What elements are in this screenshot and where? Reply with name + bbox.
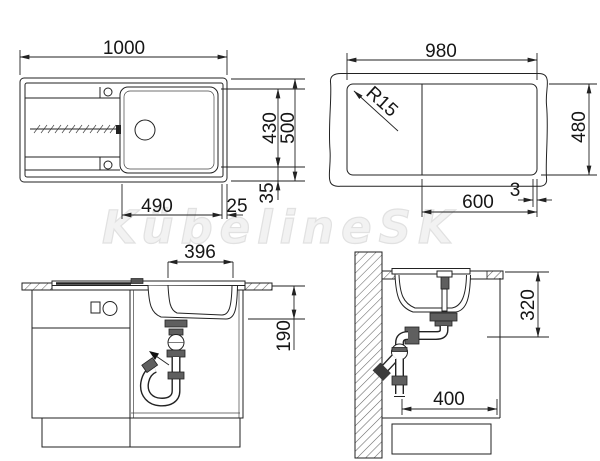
sink-outline — [20, 78, 227, 182]
dim-label-396: 396 — [184, 242, 216, 263]
dim-label-400: 400 — [433, 389, 465, 410]
bowl-front-section — [148, 286, 238, 320]
dim-cutout-depth: 480 — [541, 84, 597, 175]
dishwasher-panel — [91, 302, 100, 313]
bowl-side-section — [395, 271, 471, 312]
siphon-front — [142, 320, 187, 402]
dim-side-clearance: 400 — [402, 389, 497, 415]
front-section-view: 396 190 — [22, 242, 305, 447]
siphon-side — [377, 313, 458, 397]
countertop-hatch-left — [22, 283, 52, 290]
dim-label-190: 190 — [274, 320, 295, 352]
dim-label-480: 480 — [569, 111, 590, 143]
cutout-top-view: R15 980 480 600 3 — [329, 41, 597, 217]
dim-plan-bottom: 490 25 — [122, 184, 248, 219]
technical-drawing: 1000 430 500 35 490 25 — [0, 0, 600, 461]
side-section-view: 320 400 — [355, 252, 549, 458]
dim-side-depth: 320 — [487, 272, 549, 337]
wall-outlet-cap — [377, 367, 388, 378]
overflow-mark — [116, 125, 121, 134]
tap-hole-cover — [437, 271, 452, 277]
dim-label-490: 490 — [141, 196, 173, 217]
sink-top-view: 1000 430 500 35 490 25 — [20, 38, 305, 219]
dim-label-3: 3 — [510, 180, 521, 201]
plinth-front — [42, 418, 240, 447]
sink-rim-side — [392, 269, 470, 275]
dim-label-980: 980 — [425, 41, 457, 62]
dim-label-500: 500 — [278, 112, 299, 144]
countertop-hatch-right — [245, 283, 272, 290]
dim-label-600: 600 — [462, 192, 494, 213]
drain-flange-side — [430, 313, 457, 321]
dim-front-bowl-width: 396 — [168, 242, 233, 278]
dim-front-bowl-depth: 190 — [248, 286, 305, 352]
dim-label-25: 25 — [226, 196, 247, 217]
plinth-side — [392, 424, 491, 454]
dishwasher-knob — [103, 302, 117, 316]
dim-label-1000: 1000 — [103, 38, 145, 59]
wall-section — [355, 252, 382, 458]
sink-spec-sheet: { "watermark": "KübelineSK", "dims": { "… — [0, 0, 600, 461]
tap-ledge — [131, 279, 143, 284]
dim-plan-width: 1000 — [20, 38, 227, 75]
drain-rod — [442, 289, 447, 311]
dim-label-320: 320 — [518, 289, 539, 321]
dim-plan-depths: 430 500 35 — [221, 79, 305, 204]
dim-label-35: 35 — [257, 182, 278, 203]
drain-flange — [165, 320, 187, 327]
